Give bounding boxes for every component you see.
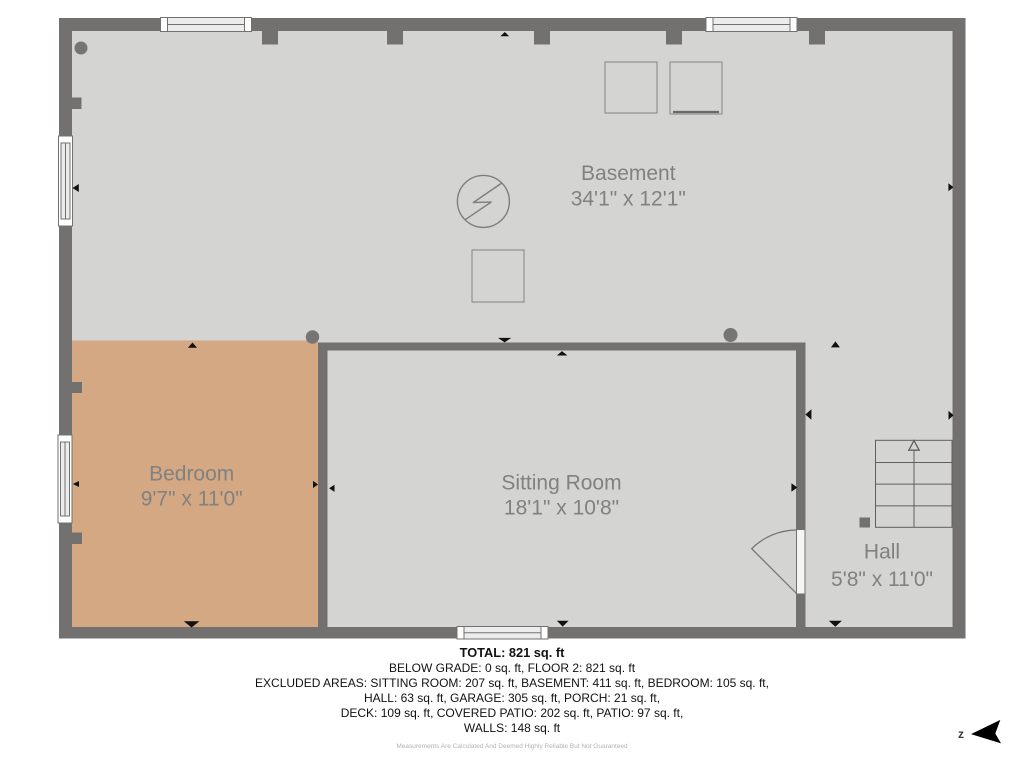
svg-text:BELOW GRADE: 0 sq. ft, FLOOR 2: BELOW GRADE: 0 sq. ft, FLOOR 2: 821 sq. …: [389, 661, 636, 675]
svg-text:34'1" x 12'1": 34'1" x 12'1": [571, 188, 686, 211]
svg-text:5'8" x 11'0": 5'8" x 11'0": [831, 568, 933, 591]
svg-text:WALLS: 148 sq. ft: WALLS: 148 sq. ft: [464, 721, 561, 735]
svg-text:Basement: Basement: [581, 162, 676, 185]
svg-text:18'1" x 10'8": 18'1" x 10'8": [504, 497, 619, 520]
svg-text:Hall: Hall: [864, 541, 900, 564]
svg-text:9'7" x 11'0": 9'7" x 11'0": [141, 488, 243, 511]
svg-text:HALL: 63 sq. ft, GARAGE: 305 s: HALL: 63 sq. ft, GARAGE: 305 sq. ft, POR…: [364, 691, 660, 705]
svg-text:Measurements Are Calculated An: Measurements Are Calculated And Deemed H…: [396, 743, 628, 750]
svg-text:Bedroom: Bedroom: [149, 463, 234, 486]
svg-text:z: z: [958, 727, 964, 741]
svg-text:EXCLUDED AREAS: SITTING ROOM:: EXCLUDED AREAS: SITTING ROOM: 207 sq. ft…: [255, 676, 769, 690]
svg-text:DECK: 109 sq. ft, COVERED PATI: DECK: 109 sq. ft, COVERED PATIO: 202 sq.…: [341, 706, 684, 720]
svg-text:Sitting Room: Sitting Room: [501, 472, 621, 495]
svg-text:TOTAL: 821 sq. ft: TOTAL: 821 sq. ft: [460, 645, 565, 660]
